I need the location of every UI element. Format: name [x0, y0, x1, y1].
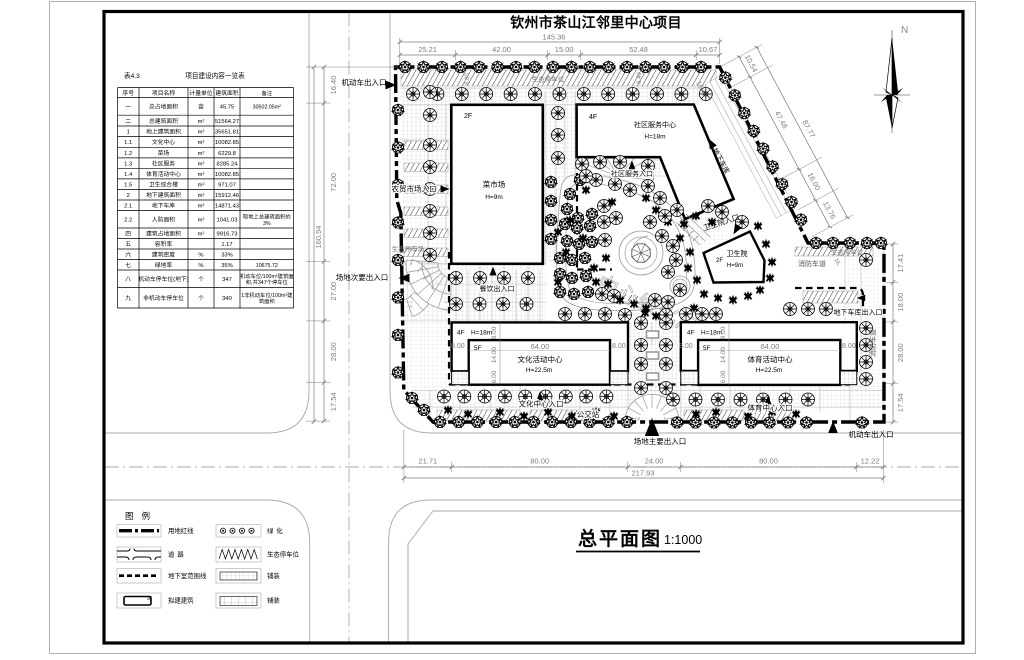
svg-text:5F: 5F [474, 345, 482, 352]
svg-text:72.00: 72.00 [329, 173, 338, 192]
svg-text:体育活动中心: 体育活动中心 [748, 354, 793, 364]
svg-text:4F: 4F [147, 597, 151, 601]
svg-text:10675.72: 10675.72 [256, 263, 278, 269]
svg-text:序号: 序号 [122, 89, 134, 97]
svg-text:用地红线: 用地红线 [168, 526, 194, 535]
svg-text:64.00: 64.00 [761, 342, 780, 351]
svg-text:m²: m² [198, 182, 205, 188]
svg-text:表4.3: 表4.3 [124, 71, 140, 80]
svg-text:m²: m² [198, 162, 205, 168]
svg-text:8.00: 8.00 [720, 326, 727, 339]
svg-text:m²: m² [198, 217, 205, 223]
svg-text:m²: m² [198, 151, 205, 157]
svg-text:10082.85: 10082.85 [215, 172, 239, 178]
svg-text:地下建筑面积: 地下建筑面积 [146, 191, 181, 199]
svg-text:52.48: 52.48 [629, 45, 648, 54]
svg-text:51564.27: 51564.27 [215, 119, 239, 125]
svg-text:地下车库出入口: 地下车库出入口 [834, 308, 883, 317]
svg-text:33%: 33% [221, 252, 233, 258]
svg-text:机动车出入口: 机动车出入口 [849, 429, 894, 439]
svg-text:8.00: 8.00 [451, 343, 465, 350]
svg-text:建筑占地面积: 建筑占地面积 [146, 229, 181, 237]
svg-text:人防面积: 人防面积 [152, 215, 175, 223]
svg-text:10.67: 10.67 [699, 45, 718, 54]
svg-text:347: 347 [222, 277, 232, 283]
svg-text:总建筑面积: 总建筑面积 [149, 117, 178, 125]
svg-text:消防车道: 消防车道 [868, 329, 877, 357]
svg-text:3%: 3% [263, 221, 271, 227]
svg-text:80.00: 80.00 [759, 457, 778, 466]
svg-text:积,共347个停车位: 积,共347个停车位 [246, 278, 289, 286]
svg-text:2.1: 2.1 [124, 203, 132, 209]
svg-text:%: % [198, 252, 203, 258]
svg-text:铺装: 铺装 [267, 571, 280, 580]
svg-text:6.00: 6.00 [720, 370, 727, 383]
svg-text:九: 九 [125, 294, 131, 302]
svg-text:二: 二 [125, 119, 131, 125]
svg-text:160.94: 160.94 [314, 226, 323, 249]
svg-text:H=9m: H=9m [727, 263, 743, 269]
svg-text:社区服务入口: 社区服务入口 [611, 169, 653, 178]
svg-text:14.00: 14.00 [491, 346, 498, 363]
svg-text:非机动车停车位: 非机动车停车位 [143, 294, 184, 302]
svg-text:m²: m² [198, 231, 205, 237]
svg-text:6.40: 6.40 [637, 72, 643, 84]
svg-text:1.17: 1.17 [221, 242, 232, 248]
svg-text:H=22.5m: H=22.5m [756, 367, 783, 374]
svg-text:28.00: 28.00 [896, 343, 905, 362]
svg-text:8.00: 8.00 [679, 343, 693, 350]
svg-text:生态停车位: 生态停车位 [532, 75, 565, 84]
svg-text:80.00: 80.00 [530, 457, 549, 466]
svg-text:取地上总建筑面积的: 取地上总建筑面积的 [243, 213, 291, 221]
svg-text:机动车出入口: 机动车出入口 [342, 77, 387, 87]
svg-text:地上建筑面积: 地上建筑面积 [146, 128, 181, 136]
svg-text:生态停车位: 生态停车位 [831, 248, 864, 257]
svg-text:8285.24: 8285.24 [217, 162, 239, 168]
svg-text:文化活动中心: 文化活动中心 [518, 354, 563, 364]
svg-text:道路: 道路 [168, 550, 187, 559]
svg-text:6.00: 6.00 [491, 370, 498, 383]
svg-text:地下室范围线: 地下室范围线 [168, 571, 207, 580]
svg-text:6.00: 6.00 [465, 73, 471, 85]
svg-text:拟建建筑: 拟建建筑 [168, 596, 194, 605]
svg-text:1.1: 1.1 [124, 140, 132, 146]
svg-text:m²: m² [198, 140, 205, 146]
svg-text:H=18m: H=18m [701, 330, 722, 337]
svg-text:机动车停车位(地下): 机动车停车位(地下) [138, 275, 188, 283]
svg-text:场地主要出入口: 场地主要出入口 [634, 436, 687, 446]
svg-text:1.2: 1.2 [124, 151, 132, 157]
svg-text:2F: 2F [464, 113, 472, 120]
svg-text:42.00: 42.00 [492, 45, 511, 54]
svg-text:217.93: 217.93 [632, 469, 655, 478]
svg-text:生态停车位: 生态停车位 [267, 550, 300, 559]
svg-text:27.00: 27.00 [329, 282, 338, 301]
svg-text:2F: 2F [716, 258, 723, 264]
svg-text:备注: 备注 [261, 89, 272, 97]
svg-text:12.22: 12.22 [861, 457, 880, 466]
svg-text:菜市场: 菜市场 [483, 179, 506, 189]
svg-text:25.21: 25.21 [418, 45, 437, 54]
svg-text:四: 四 [125, 230, 131, 237]
svg-text:六: 六 [125, 250, 131, 258]
svg-text:m²: m² [198, 193, 205, 199]
svg-text:建筑面积: 建筑面积 [215, 89, 238, 97]
svg-text:H=18m: H=18m [471, 330, 492, 337]
svg-text:28.00: 28.00 [329, 342, 338, 361]
svg-text:16.40: 16.40 [329, 76, 338, 95]
svg-text:1:1000: 1:1000 [664, 533, 702, 547]
svg-text:农贸市场入口: 农贸市场入口 [392, 184, 437, 194]
svg-text:17.41: 17.41 [896, 254, 905, 273]
svg-text:m²: m² [198, 172, 205, 178]
svg-text:个: 个 [198, 295, 204, 302]
svg-text:m²: m² [198, 119, 205, 125]
svg-text:17.54: 17.54 [896, 393, 905, 412]
svg-text:绿化: 绿化 [267, 526, 286, 535]
svg-text:145.36: 145.36 [543, 33, 566, 42]
svg-text:H=22.5m: H=22.5m [526, 367, 553, 374]
svg-text:建筑密度: 建筑密度 [152, 250, 175, 258]
svg-text:地下车库: 地下车库 [152, 201, 175, 209]
svg-text:971.07: 971.07 [218, 182, 236, 188]
svg-text:8.00: 8.00 [842, 343, 856, 350]
svg-text:30502.05m²: 30502.05m² [253, 105, 282, 111]
svg-text:绿地率: 绿地率 [155, 261, 173, 269]
svg-text:文化中心入口: 文化中心入口 [519, 399, 564, 409]
svg-text:H=18m: H=18m [644, 134, 665, 141]
svg-text:21.71: 21.71 [418, 457, 437, 466]
svg-text:14871.43: 14871.43 [215, 203, 239, 209]
svg-text:容积率: 容积率 [155, 240, 173, 248]
svg-text:1: 1 [127, 130, 130, 136]
svg-text:项目建设内容一览表: 项目建设内容一览表 [185, 71, 245, 80]
svg-text:14.00: 14.00 [720, 346, 727, 363]
svg-text:社区服务中心: 社区服务中心 [634, 120, 676, 129]
svg-text:17.54: 17.54 [329, 392, 338, 411]
svg-text:H=9m: H=9m [485, 194, 503, 201]
svg-text:餐饮出入口: 餐饮出入口 [480, 284, 515, 293]
svg-text:机动车位/100m²建筑面: 机动车位/100m²建筑面 [240, 272, 294, 280]
svg-text:菜场: 菜场 [158, 149, 170, 157]
svg-text:卫生综合楼: 卫生综合楼 [149, 180, 178, 188]
svg-text:15912.46: 15912.46 [215, 193, 239, 199]
svg-text:个: 个 [198, 276, 204, 283]
svg-text:5F: 5F [703, 345, 711, 352]
svg-text:2: 2 [127, 193, 130, 199]
svg-text:公交站: 公交站 [577, 409, 600, 419]
svg-text:1非机动车位/100m²建: 1非机动车位/100m²建 [241, 291, 293, 299]
svg-text:场地次要出入口: 场地次要出入口 [336, 272, 389, 282]
svg-text:七: 七 [125, 261, 131, 269]
svg-text:18.00: 18.00 [896, 293, 905, 312]
svg-text:筑面积: 筑面积 [259, 297, 276, 305]
svg-text:15.00: 15.00 [555, 45, 574, 54]
svg-text:8.00: 8.00 [491, 326, 498, 339]
svg-text:1041.03: 1041.03 [217, 217, 238, 223]
svg-text:N: N [901, 25, 908, 36]
svg-text:五: 五 [125, 241, 131, 248]
svg-text:亩: 亩 [198, 103, 204, 111]
svg-text:64.00: 64.00 [531, 342, 550, 351]
svg-text:生态停车场: 生态停车场 [392, 244, 425, 253]
svg-text:24.00: 24.00 [645, 457, 664, 466]
svg-text:4F: 4F [687, 330, 695, 337]
svg-text:1.4: 1.4 [124, 172, 133, 178]
svg-text:总占地面积: 总占地面积 [149, 103, 178, 111]
svg-text:社区服务: 社区服务 [152, 160, 175, 168]
svg-text:1.5: 1.5 [124, 182, 132, 188]
svg-text:体育中心入口: 体育中心入口 [748, 403, 793, 413]
svg-text:八: 八 [125, 277, 131, 283]
svg-text:总平面图: 总平面图 [578, 527, 662, 550]
svg-text:1.3: 1.3 [124, 162, 132, 168]
svg-text:2.2: 2.2 [124, 217, 132, 223]
svg-text:4F: 4F [589, 114, 597, 121]
svg-text:一: 一 [125, 105, 131, 111]
svg-text:%: % [198, 263, 203, 269]
svg-text:计量单位: 计量单位 [189, 89, 212, 97]
svg-text:35%: 35% [221, 263, 233, 269]
svg-text:6229.8: 6229.8 [218, 151, 236, 157]
svg-text:9916.73: 9916.73 [217, 231, 238, 237]
svg-text:45.75: 45.75 [220, 105, 235, 111]
svg-text:m²: m² [198, 203, 205, 209]
svg-text:消防车道: 消防车道 [798, 259, 826, 268]
svg-text:340: 340 [222, 296, 232, 302]
svg-text:8.00: 8.00 [612, 343, 626, 350]
svg-text:文化中心: 文化中心 [152, 138, 175, 146]
svg-text:m²: m² [198, 130, 205, 136]
svg-text:10082.85: 10082.85 [215, 140, 239, 146]
svg-text:钦州市茶山江邻里中心项目: 钦州市茶山江邻里中心项目 [510, 15, 682, 31]
svg-text:卫生院: 卫生院 [727, 249, 748, 258]
svg-text:体育活动中心: 体育活动中心 [146, 170, 181, 178]
svg-text:4F: 4F [457, 330, 465, 337]
svg-text:铺装: 铺装 [267, 596, 280, 605]
svg-text:35651.81: 35651.81 [215, 130, 239, 136]
svg-text:图例: 图例 [125, 511, 158, 521]
svg-text:项目名称: 项目名称 [152, 89, 175, 97]
